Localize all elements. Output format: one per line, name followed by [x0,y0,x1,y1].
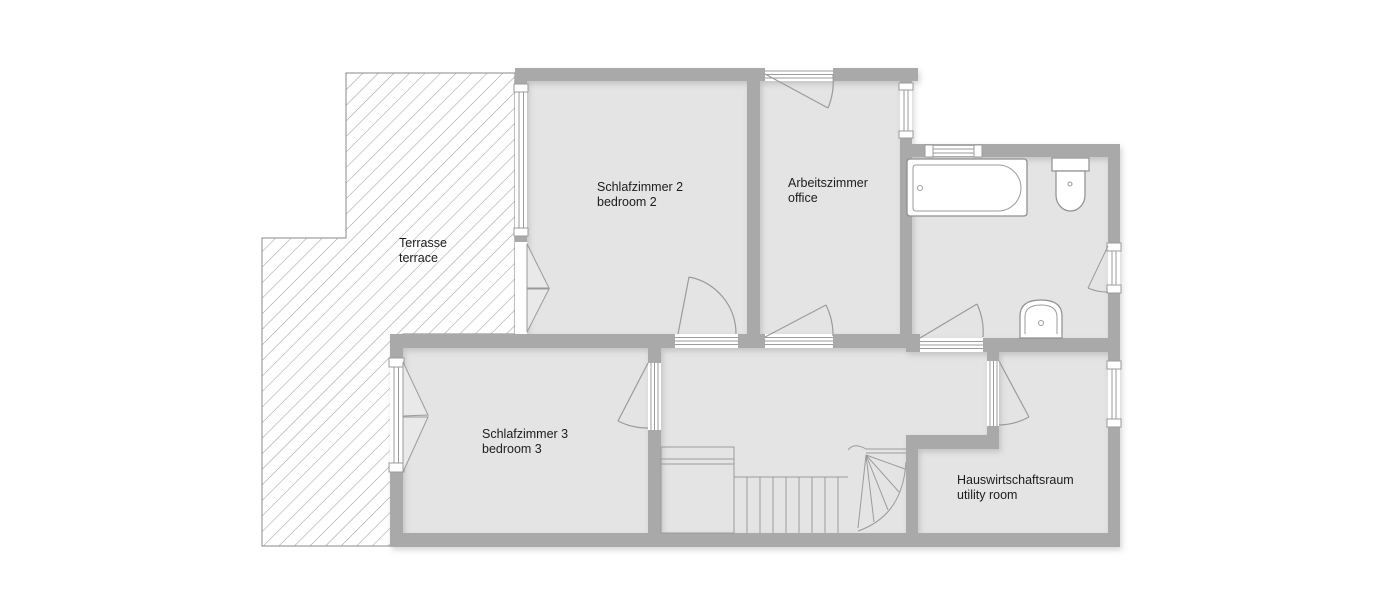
bedroom-2-window-opening [515,86,527,228]
bedroom-2-label: Schlafzimmer 2 bedroom 2 [597,180,683,210]
washbasin [1020,300,1062,338]
terrace-label-en: terrace [399,251,447,266]
office-label-de: Arbeitszimmer [788,176,868,191]
terrace-door-opening [515,242,527,334]
bedroom-2-label-de: Schlafzimmer 2 [597,180,683,195]
floor-plan: Terrasse terrace Schlafzimmer 2 bedroom … [0,0,1400,600]
bathtub [907,159,1027,216]
bedroom-3-window-opening [390,360,403,472]
office-window-opening [900,85,912,138]
terrace-label-de: Terrasse [399,236,447,251]
toilet [1052,158,1089,211]
utility-room-label-de: Hauswirtschaftsraum [957,473,1074,488]
bedroom-3-label-en: bedroom 3 [482,442,568,457]
bedroom-2-label-en: bedroom 2 [597,195,683,210]
bathroom-top-window-opening [925,146,982,156]
office-floor [755,75,905,340]
bedroom-3-label-de: Schlafzimmer 3 [482,427,568,442]
terrace-label: Terrasse terrace [399,236,447,266]
utility-window-opening [1108,361,1120,427]
floor-plan-drawing [0,0,1400,600]
utility-room-label-en: utility room [957,488,1074,503]
utility-room-label: Hauswirtschaftsraum utility room [957,473,1074,503]
office-label: Arbeitszimmer office [788,176,868,206]
bedroom-3-label: Schlafzimmer 3 bedroom 3 [482,427,568,457]
office-label-en: office [788,191,868,206]
